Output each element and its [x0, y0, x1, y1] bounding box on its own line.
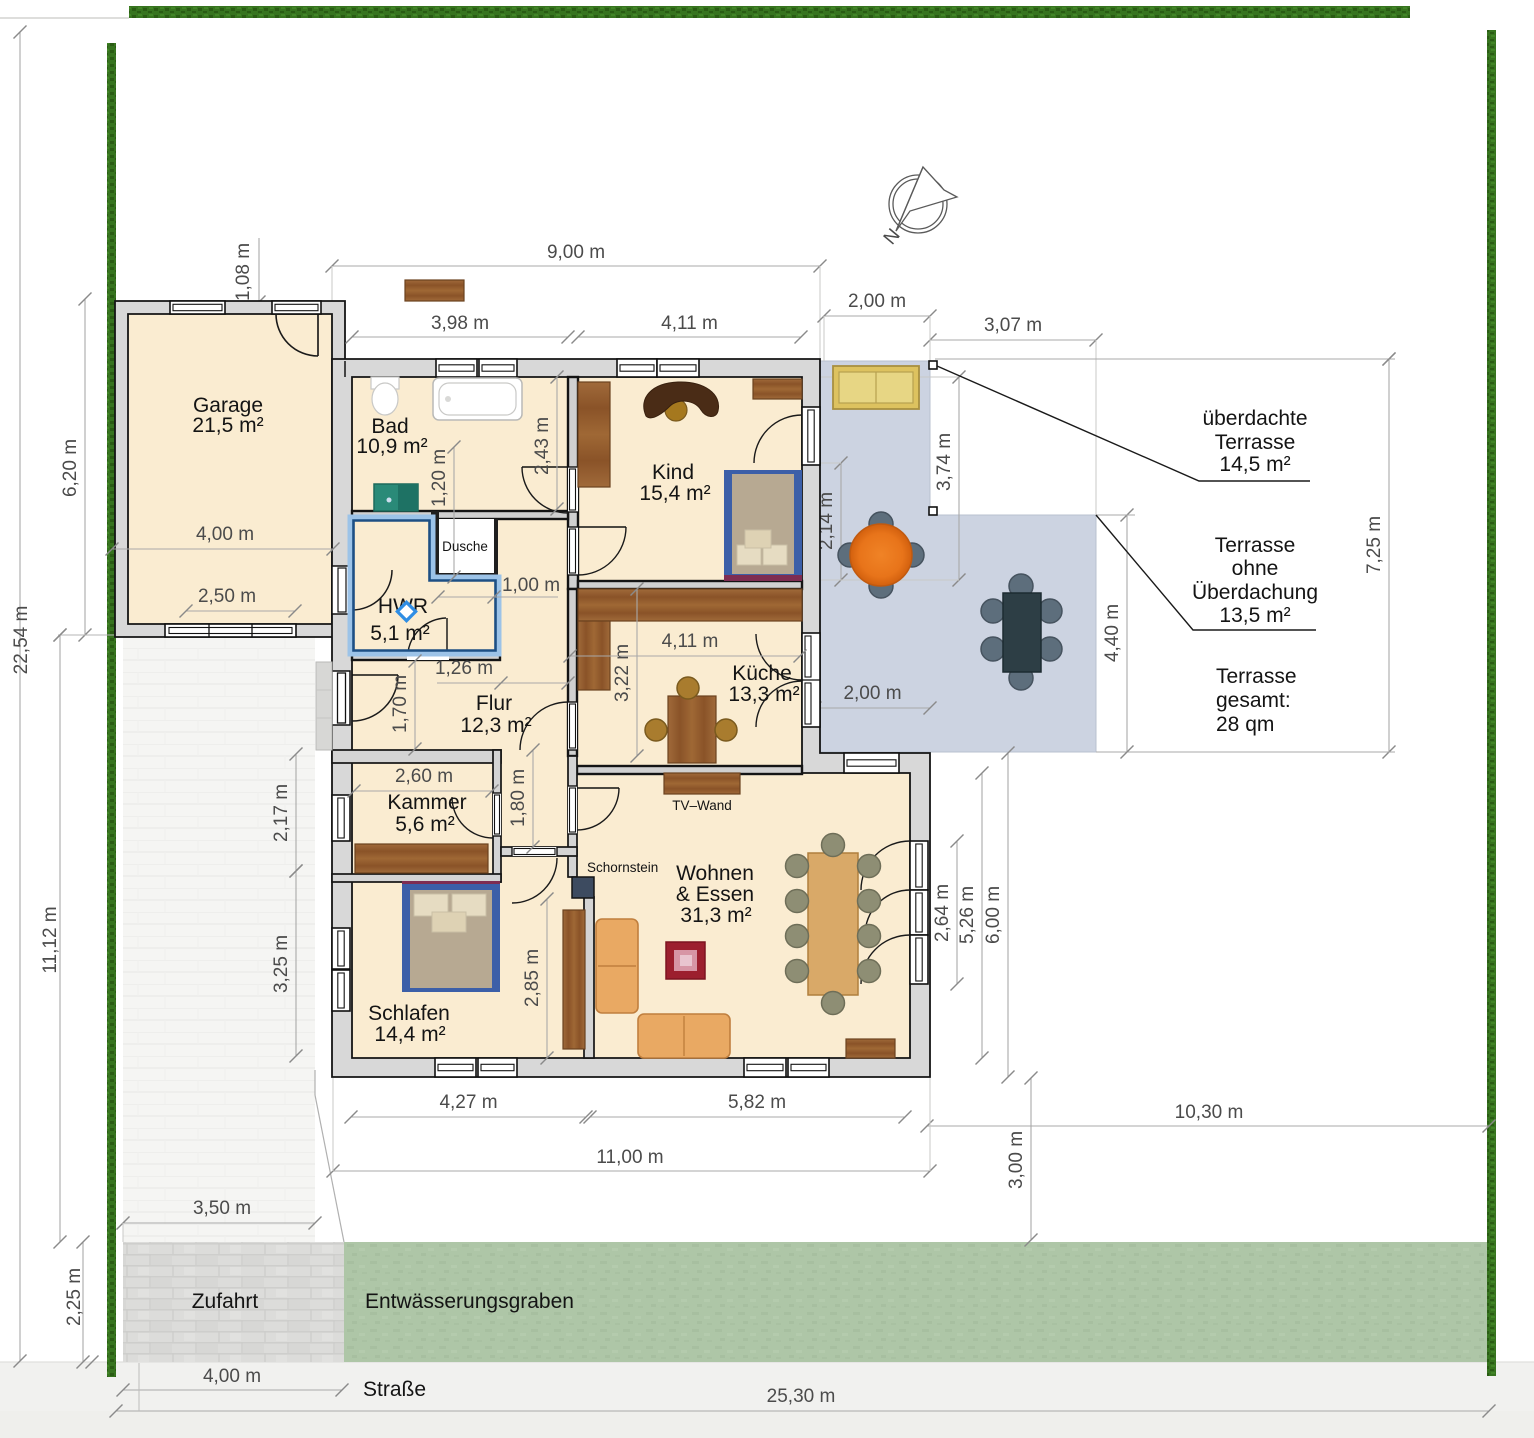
- svg-text:Schornstein: Schornstein: [587, 860, 658, 875]
- svg-text:4,40 m: 4,40 m: [1102, 604, 1123, 662]
- svg-text:überdachte: überdachte: [1202, 407, 1307, 430]
- svg-text:Straße: Straße: [363, 1378, 426, 1401]
- svg-text:1,20 m: 1,20 m: [429, 449, 450, 507]
- svg-text:2,64 m: 2,64 m: [932, 884, 953, 942]
- svg-text:3,50 m: 3,50 m: [193, 1198, 251, 1219]
- svg-text:Dusche: Dusche: [442, 539, 488, 554]
- svg-text:gesamt:: gesamt:: [1216, 689, 1291, 712]
- svg-text:Schlafen: Schlafen: [368, 1002, 450, 1025]
- svg-text:4,27 m: 4,27 m: [439, 1092, 497, 1113]
- svg-text:13,5 m²: 13,5 m²: [1219, 604, 1290, 627]
- svg-text:4,11 m: 4,11 m: [662, 631, 719, 652]
- svg-text:1,08 m: 1,08 m: [233, 243, 254, 301]
- svg-text:3,00 m: 3,00 m: [1006, 1131, 1027, 1189]
- svg-text:6,20 m: 6,20 m: [60, 439, 81, 497]
- svg-text:25,30 m: 25,30 m: [767, 1386, 836, 1407]
- svg-text:11,00 m: 11,00 m: [596, 1147, 663, 1168]
- svg-text:2,43 m: 2,43 m: [532, 417, 553, 475]
- svg-text:4,00 m: 4,00 m: [196, 524, 254, 545]
- svg-text:11,12 m: 11,12 m: [40, 906, 61, 973]
- svg-text:TV–Wand: TV–Wand: [672, 798, 732, 813]
- svg-text:Kammer: Kammer: [387, 791, 466, 814]
- svg-text:13,3 m²: 13,3 m²: [728, 683, 799, 706]
- svg-text:5,82 m: 5,82 m: [728, 1092, 786, 1113]
- svg-text:2,17 m: 2,17 m: [271, 784, 292, 842]
- svg-text:Zufahrt: Zufahrt: [192, 1290, 259, 1313]
- svg-text:1,70 m: 1,70 m: [390, 675, 411, 733]
- svg-text:2,60 m: 2,60 m: [395, 766, 453, 787]
- svg-text:5,6 m²: 5,6 m²: [395, 813, 455, 836]
- svg-text:5,1 m²: 5,1 m²: [370, 622, 430, 645]
- svg-text:10,30 m: 10,30 m: [1175, 1102, 1244, 1123]
- svg-text:3,25 m: 3,25 m: [271, 935, 292, 993]
- svg-text:1,00 m: 1,00 m: [502, 575, 560, 596]
- svg-text:6,00 m: 6,00 m: [983, 886, 1004, 944]
- svg-text:Entwässerungsgraben: Entwässerungsgraben: [365, 1290, 574, 1313]
- svg-text:4,00 m: 4,00 m: [203, 1366, 261, 1387]
- svg-text:1,26 m: 1,26 m: [435, 658, 493, 679]
- svg-text:& Essen: & Essen: [676, 883, 754, 906]
- svg-text:2,00 m: 2,00 m: [848, 291, 906, 312]
- svg-text:2,00 m: 2,00 m: [843, 683, 901, 704]
- svg-text:14,5 m²: 14,5 m²: [1219, 453, 1290, 476]
- svg-text:Terrasse: Terrasse: [1215, 431, 1296, 454]
- svg-text:9,00 m: 9,00 m: [547, 242, 605, 263]
- svg-text:15,4 m²: 15,4 m²: [639, 482, 710, 505]
- svg-text:Küche: Küche: [732, 662, 792, 685]
- svg-text:Terrasse: Terrasse: [1216, 665, 1297, 688]
- svg-text:2,25 m: 2,25 m: [64, 1268, 85, 1326]
- svg-text:7,25 m: 7,25 m: [1364, 516, 1385, 574]
- svg-text:28 qm: 28 qm: [1216, 713, 1274, 736]
- svg-text:Flur: Flur: [476, 692, 512, 715]
- svg-text:Terrasse: Terrasse: [1215, 534, 1296, 557]
- svg-text:3,74 m: 3,74 m: [934, 433, 955, 491]
- svg-text:Wohnen: Wohnen: [676, 862, 754, 885]
- svg-text:Überdachung: Überdachung: [1192, 581, 1318, 604]
- svg-text:31,3 m²: 31,3 m²: [680, 904, 751, 927]
- svg-text:2,50 m: 2,50 m: [198, 586, 256, 607]
- svg-text:3,22 m: 3,22 m: [612, 644, 633, 702]
- svg-text:14,4 m²: 14,4 m²: [374, 1023, 445, 1046]
- svg-text:Kind: Kind: [652, 461, 694, 484]
- svg-text:5,26 m: 5,26 m: [957, 886, 978, 944]
- svg-text:2,85 m: 2,85 m: [522, 949, 543, 1007]
- svg-text:22,54 m: 22,54 m: [11, 606, 32, 675]
- svg-text:10,9 m²: 10,9 m²: [356, 435, 427, 458]
- svg-text:3,07 m: 3,07 m: [984, 315, 1042, 336]
- svg-text:21,5 m²: 21,5 m²: [192, 414, 263, 437]
- svg-text:1,80 m: 1,80 m: [508, 769, 529, 827]
- svg-text:3,98 m: 3,98 m: [431, 313, 489, 334]
- svg-text:4,11 m: 4,11 m: [661, 313, 718, 334]
- svg-text:12,3 m²: 12,3 m²: [460, 714, 531, 737]
- svg-text:ohne: ohne: [1232, 557, 1279, 580]
